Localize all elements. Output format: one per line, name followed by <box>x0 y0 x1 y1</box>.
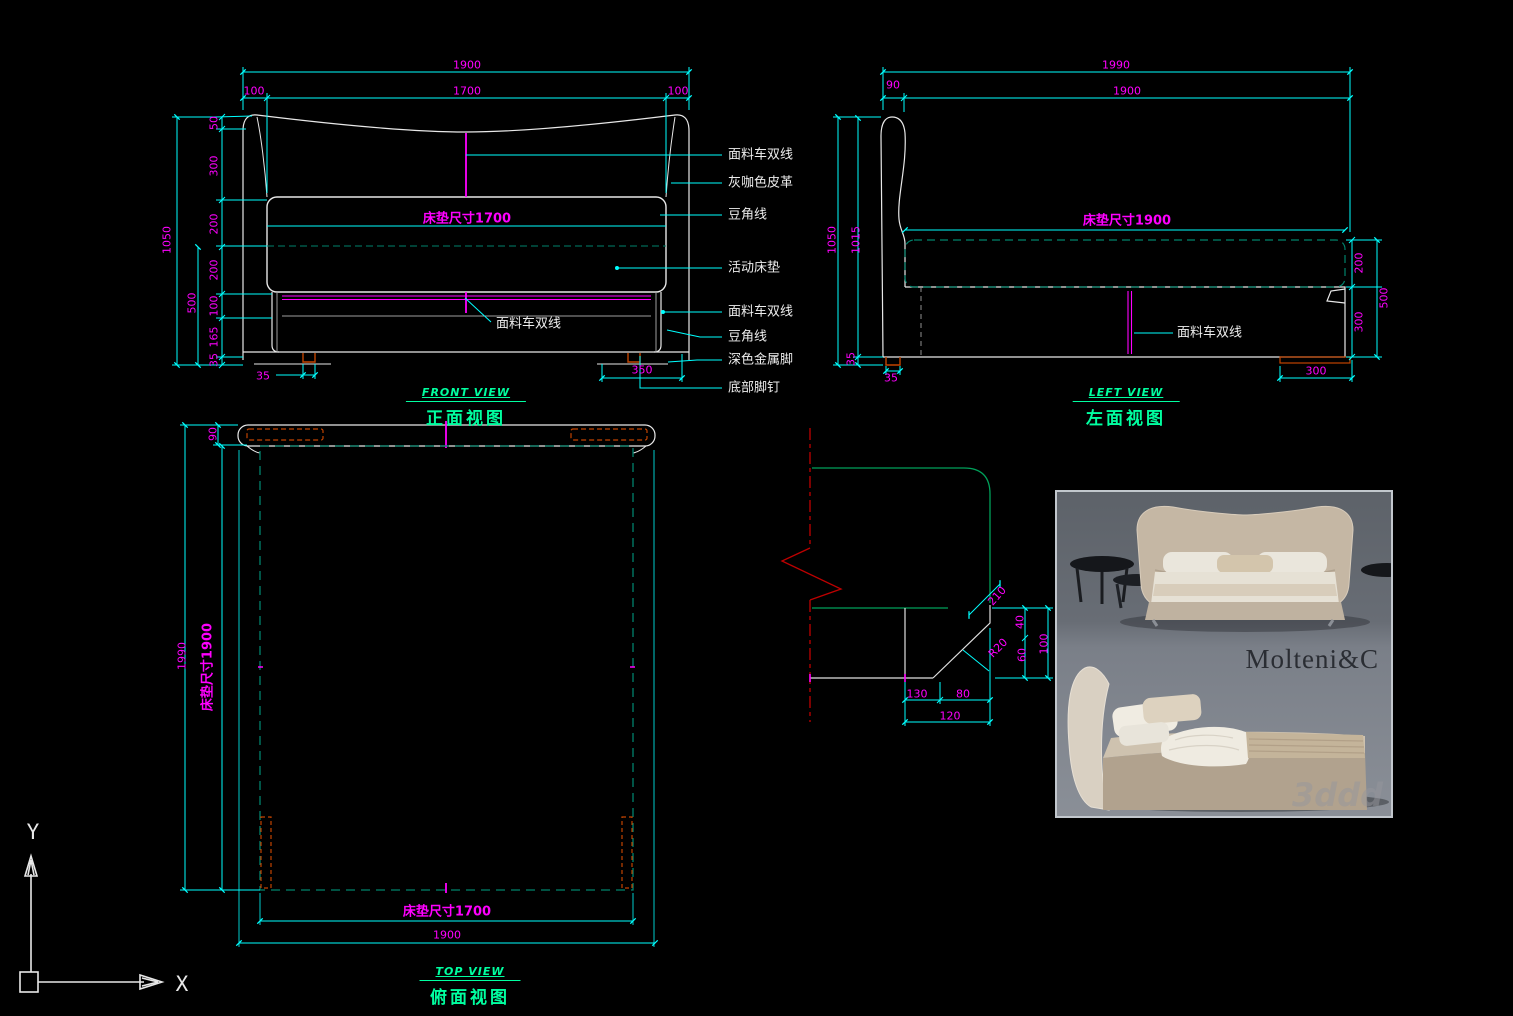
watermark-text: 3ddd <box>1292 776 1383 814</box>
dim-label: 300 <box>1354 312 1365 333</box>
dim-label: 床垫尺寸1900 <box>202 623 215 711</box>
dim-label: 60 <box>1017 648 1028 662</box>
dim-label: 床垫尺寸1900 <box>1083 215 1171 228</box>
annotation-label: 面料车双线 <box>728 306 793 319</box>
front-view-details <box>267 133 666 362</box>
detail-view <box>782 428 1053 726</box>
annotation-label: 面料车双线 <box>728 149 793 162</box>
dim-label: 90 <box>208 427 219 441</box>
dim-label: 1990 <box>177 642 188 670</box>
dim-label: 床垫尺寸1700 <box>403 906 491 919</box>
dim-label: 350 <box>632 365 653 376</box>
dim-label: 200 <box>209 214 220 235</box>
dim-label: 35 <box>256 371 270 382</box>
dim-label: 120 <box>940 711 961 722</box>
dim-label: 500 <box>187 293 198 314</box>
dim-label: 1900 <box>1113 86 1141 97</box>
product-photo: Molteni&C 3ddd <box>1055 490 1393 818</box>
dim-label: 1050 <box>827 226 838 254</box>
dim-label: 35 <box>884 373 898 384</box>
top-view-title: TOP VIEW 俯面视图 <box>420 960 521 1008</box>
top-view-title-en: TOP VIEW <box>420 965 521 981</box>
top-view-outline <box>238 421 655 893</box>
annotation-label: 豆角线 <box>728 331 767 344</box>
dim-label: 80 <box>956 689 970 700</box>
dim-label: 床垫尺寸1700 <box>423 213 511 226</box>
front-view-title: FRONT VIEW 正面视图 <box>406 381 526 429</box>
dim-label: 130 <box>907 689 928 700</box>
ucs-x-label: X <box>176 972 189 996</box>
dim-label: 100 <box>209 296 220 317</box>
dim-label: 35 <box>846 352 857 366</box>
dim-label: 300 <box>209 156 220 177</box>
top-view-title-zh: 俯面视图 <box>420 983 521 1008</box>
annotation-label: 豆角线 <box>728 209 767 222</box>
left-view-title-zh: 左面视图 <box>1073 404 1180 429</box>
dim-label: 1900 <box>453 60 481 71</box>
left-view-outline <box>881 117 1345 357</box>
annotation-label: 底部脚钉 <box>728 382 780 395</box>
dim-label: 300 <box>1306 366 1327 377</box>
dim-label: 1015 <box>851 226 862 254</box>
dim-label: 165 <box>209 327 220 348</box>
left-view-title-en: LEFT VIEW <box>1073 386 1180 402</box>
annotation-label: 面料车双线 <box>496 318 561 331</box>
front-view-leaders <box>465 155 722 388</box>
front-view-title-en: FRONT VIEW <box>406 386 526 402</box>
dim-label: 100 <box>1039 634 1050 655</box>
dim-label: 100 <box>668 86 689 97</box>
cad-viewport: FRONT VIEW 正面视图 LEFT VIEW 左面视图 TOP VIEW … <box>0 0 1513 1016</box>
dim-label: 35 <box>209 353 220 367</box>
dim-label: 1900 <box>433 930 461 941</box>
dim-label: 40 <box>1015 615 1026 629</box>
left-view-details <box>886 240 1350 365</box>
ucs-icon <box>20 856 162 992</box>
front-view-title-zh: 正面视图 <box>406 404 526 429</box>
dim-label: 1700 <box>453 86 481 97</box>
brand-text: Molteni&C <box>1245 644 1379 675</box>
dim-label: 100 <box>244 86 265 97</box>
bed-front-render <box>1137 506 1353 626</box>
annotation-label: 面料车双线 <box>1177 327 1242 340</box>
left-view-title: LEFT VIEW 左面视图 <box>1073 381 1180 429</box>
ucs-y-label: Y <box>27 820 40 844</box>
annotation-label: 深色金属脚 <box>728 354 793 367</box>
annotation-label: 灰咖色皮革 <box>728 177 793 190</box>
dim-label: 200 <box>209 260 220 281</box>
dim-label: 90 <box>886 80 900 91</box>
dim-label: 1050 <box>162 226 173 254</box>
dim-label: 1990 <box>1102 60 1130 71</box>
dim-label: 50 <box>209 116 220 130</box>
annotation-label: 活动床垫 <box>728 262 780 275</box>
top-view-dimensions <box>180 425 655 947</box>
dim-label: 500 <box>1379 288 1390 309</box>
dim-label: 200 <box>1354 253 1365 274</box>
